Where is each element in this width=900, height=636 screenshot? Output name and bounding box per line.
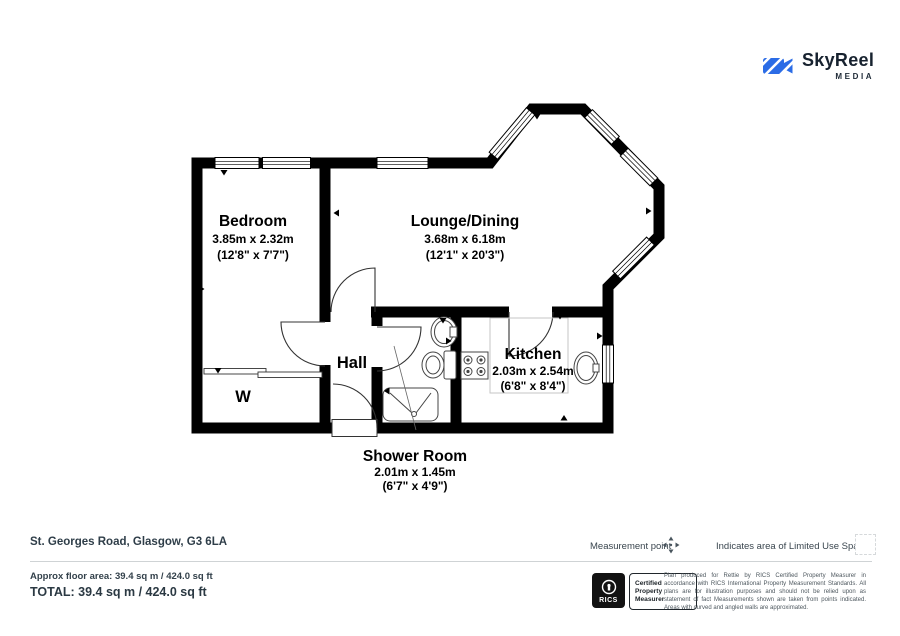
total-floor-area: TOTAL: 39.4 sq m / 424.0 sq ft (30, 585, 207, 599)
hob (461, 352, 488, 379)
wardrobe-sliding-doors (204, 369, 322, 378)
floorplan-page: SkyReel MEDIA (0, 0, 900, 636)
measurement-point-arrow (597, 333, 603, 340)
limited-use-label: Indicates area of Limited Use Space (716, 541, 869, 552)
rics-org-text: RICS (599, 597, 618, 604)
door-bedroom (281, 322, 325, 366)
measurement-point-arrow (534, 114, 541, 120)
window (603, 345, 614, 383)
disclaimer-text: Plan produced for Rettie by RICS Certifi… (664, 573, 866, 613)
room-label-bedroom: Bedroom (219, 213, 287, 230)
room-label-wardrobe: W (235, 388, 251, 406)
rics-crest-icon (600, 578, 618, 596)
room-label-lounge: Lounge/Dining (411, 213, 519, 230)
room-dim-metric: 3.68m x 6.18m (424, 232, 505, 246)
door-lounge (331, 268, 375, 312)
window (215, 158, 259, 169)
measurement-point-icon (662, 536, 680, 554)
window (489, 108, 535, 160)
room-label-hall: Hall (337, 354, 367, 372)
footer-divider (30, 561, 872, 562)
approx-floor-area: Approx floor area: 39.4 sq m / 424.0 sq … (30, 571, 213, 582)
measurement-point-arrow (646, 208, 652, 215)
room-dim-imperial: (6'8" x 8'4") (500, 379, 565, 393)
room-dim-metric: 3.85m x 2.32m (212, 232, 293, 246)
property-address: St. Georges Road, Glasgow, G3 6LA (30, 536, 227, 548)
limited-use-swatch (855, 534, 876, 555)
measurement-point-arrow (561, 415, 568, 421)
room-dim-imperial: (12'8" x 7'7") (217, 248, 289, 262)
toilet (422, 351, 456, 379)
room-label-shower: Shower Room (363, 448, 467, 465)
window (263, 158, 311, 169)
measurement-point-arrow (334, 210, 340, 217)
window (585, 110, 620, 145)
room-label-kitchen: Kitchen (505, 346, 562, 363)
kitchen-sink (574, 352, 599, 384)
window (613, 237, 655, 279)
room-dim-imperial: (6'7" x 4'9") (382, 479, 447, 493)
window (377, 158, 428, 169)
window (620, 148, 657, 185)
door-entrance-leaf (332, 420, 377, 437)
room-dim-imperial: (12'1" x 20'3") (426, 248, 504, 262)
room-dim-metric: 2.03m x 2.54m (492, 364, 573, 378)
room-dim-metric: 2.01m x 1.45m (374, 465, 455, 479)
measurement-point-arrow (221, 170, 228, 176)
rics-logo: RICS (592, 573, 625, 608)
floor-plan: Bedroom 3.85m x 2.32m (12'8" x 7'7") Lou… (0, 0, 900, 520)
interior-walls (325, 158, 613, 433)
measurement-point-label: Measurement point (590, 541, 671, 552)
